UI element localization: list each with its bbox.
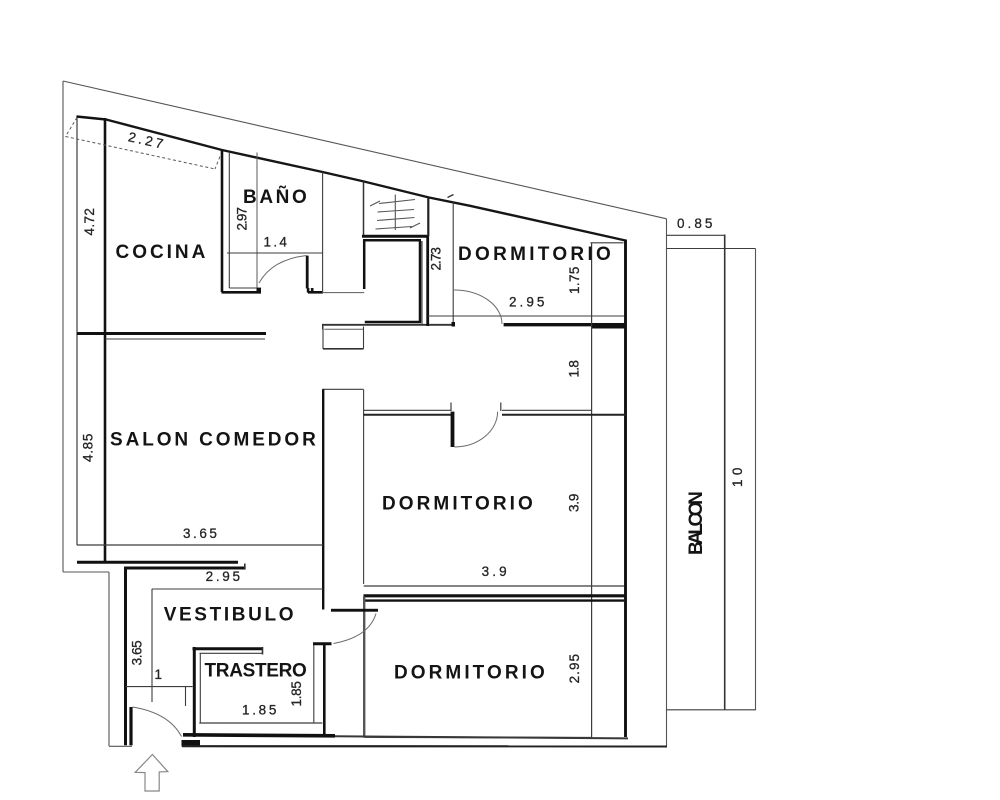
- svg-text:2.95: 2.95: [509, 295, 545, 310]
- svg-text:4.72: 4.72: [82, 208, 97, 236]
- svg-text:3.65: 3.65: [130, 640, 145, 666]
- svg-text:3.9: 3.9: [567, 493, 582, 512]
- svg-text:1.4: 1.4: [264, 235, 288, 250]
- svg-text:BALCON: BALCON: [686, 490, 707, 555]
- svg-text:1: 1: [155, 667, 163, 682]
- svg-text:4.85: 4.85: [81, 433, 96, 462]
- svg-text:2.97: 2.97: [235, 207, 250, 231]
- svg-text:1.85: 1.85: [289, 681, 304, 707]
- svg-text:COCINA: COCINA: [116, 242, 207, 263]
- svg-text:1.8: 1.8: [567, 360, 582, 378]
- svg-text:0.85: 0.85: [677, 216, 713, 231]
- svg-text:DORMITORIO: DORMITORIO: [458, 244, 612, 265]
- svg-text:1.75: 1.75: [567, 266, 582, 294]
- svg-text:2.95: 2.95: [206, 569, 241, 584]
- svg-text:DORMITORIO: DORMITORIO: [382, 494, 534, 515]
- svg-text:3.65: 3.65: [183, 526, 218, 541]
- svg-text:BAÑO: BAÑO: [243, 186, 308, 208]
- svg-text:VESTIBULO: VESTIBULO: [164, 605, 295, 626]
- svg-text:3.9: 3.9: [482, 564, 508, 579]
- svg-text:1.85: 1.85: [242, 703, 277, 718]
- svg-text:DORMITORIO: DORMITORIO: [394, 663, 546, 684]
- svg-text:2.95: 2.95: [567, 653, 582, 683]
- svg-text:2.73: 2.73: [429, 247, 444, 271]
- svg-text:TRASTERO: TRASTERO: [205, 660, 309, 681]
